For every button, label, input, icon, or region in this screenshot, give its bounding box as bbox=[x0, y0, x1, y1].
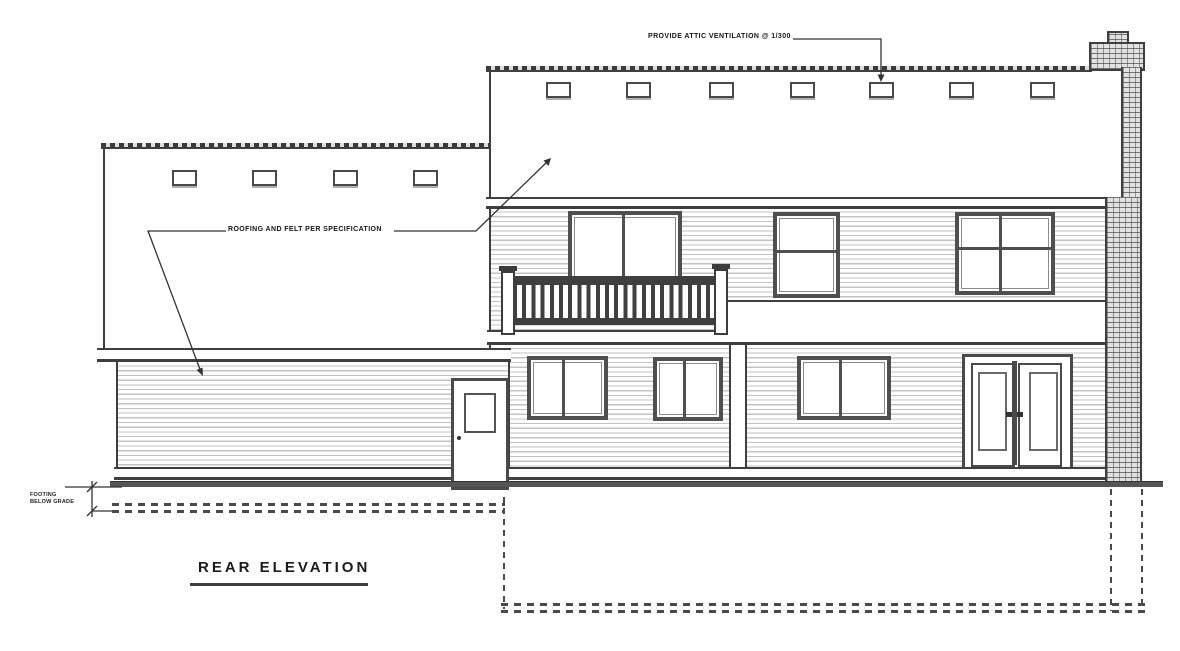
roofing-spec-note: ROOFING AND FELT PER SPECIFICATION bbox=[228, 226, 382, 234]
elevation-sheet: PROVIDE ATTIC VENTILATION @ 1/300 ROOFIN… bbox=[0, 0, 1180, 651]
attic-ventilation-note: PROVIDE ATTIC VENTILATION @ 1/300 bbox=[648, 33, 791, 41]
grade-note-line1: FOOTING bbox=[30, 492, 56, 499]
title-underline bbox=[190, 583, 368, 586]
leader-lines bbox=[0, 0, 1180, 651]
drawing-title: REAR ELEVATION bbox=[198, 559, 370, 576]
grade-note-line2: BELOW GRADE bbox=[30, 499, 74, 506]
